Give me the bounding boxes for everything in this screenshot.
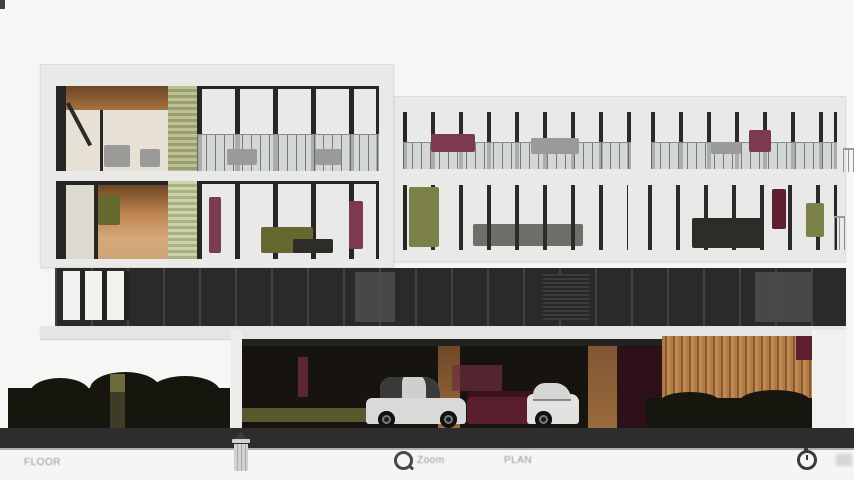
glazed-opening: [651, 112, 837, 169]
right-block-upper-floor: [403, 112, 837, 169]
furniture: [209, 197, 221, 253]
left-block-lower-floor: [56, 181, 379, 259]
left-block-upper-floor: [56, 86, 379, 171]
furniture: [349, 201, 363, 249]
trash-icon-can: [234, 444, 248, 471]
building-corner-right: [812, 330, 846, 428]
glass-balustrade: [197, 134, 379, 171]
right-block-lower-floor: [403, 185, 837, 250]
table: [711, 142, 741, 154]
maroon-accent: [298, 357, 308, 397]
toolbar-left-label: FLOOR: [24, 457, 61, 468]
glazed-opening: [56, 181, 168, 259]
shrub: [30, 378, 90, 408]
clock-icon[interactable]: [797, 450, 817, 470]
trash-icon-peak: [235, 431, 247, 439]
wall-pier: [628, 185, 648, 250]
toolbar-zoom-label: Zoom: [417, 455, 445, 466]
furniture: [772, 189, 786, 229]
car-white-rear: [527, 383, 579, 428]
kitchen: [692, 218, 762, 248]
furniture: [104, 145, 130, 167]
bright-windows: [63, 271, 129, 320]
trash-icon-lid: [232, 439, 250, 443]
ground-band: [0, 428, 854, 448]
clock-hand: [806, 455, 808, 460]
timber-column: [588, 339, 618, 428]
wall-pier: [631, 112, 651, 169]
shrub: [740, 390, 810, 412]
glazed-opening: [403, 112, 631, 169]
building-block-left: [40, 64, 394, 268]
corner-artifact: [0, 0, 5, 9]
glazed-opening: [403, 185, 628, 250]
elevation-viewer-canvas: FLOOR Zoom PLAN: [0, 0, 854, 480]
furniture: [315, 149, 341, 165]
podium-glazing-band: [55, 268, 846, 326]
light-pane: [355, 272, 395, 322]
garage-soffit: [242, 339, 662, 346]
glass-balustrade: [651, 142, 837, 169]
furniture: [227, 149, 257, 165]
glazed-opening: [648, 185, 837, 250]
table: [531, 138, 579, 154]
sofa: [431, 134, 475, 152]
glazing-frame: [100, 110, 103, 171]
toolbar-center-label: PLAN: [504, 455, 532, 466]
balcony-rail: [843, 148, 854, 172]
glazed-opening: [197, 86, 379, 171]
car-silver: [366, 377, 466, 428]
louver-screen: [168, 181, 197, 259]
shrub: [150, 376, 220, 408]
green-panel: [409, 187, 439, 247]
furniture: [293, 239, 333, 253]
zoom-ring-icon[interactable]: [394, 451, 413, 470]
louver-screen: [168, 86, 197, 171]
bottom-toolbar: FLOOR Zoom PLAN: [0, 450, 854, 480]
trash-icon[interactable]: [231, 431, 251, 476]
balcony-rail: [834, 216, 845, 250]
light-pane: [755, 272, 811, 322]
letterbox-post: [110, 374, 125, 428]
glazed-opening: [197, 181, 379, 259]
horizontal-louver: [543, 274, 589, 320]
chair: [749, 130, 771, 152]
furniture: [140, 149, 160, 167]
building-block-right: [394, 96, 846, 262]
shrub: [660, 392, 720, 412]
plant: [98, 195, 120, 225]
faint-element[interactable]: [836, 454, 852, 466]
balcony-opening: [56, 86, 168, 171]
glazing-frame: [94, 185, 98, 259]
clock-crown: [804, 448, 808, 451]
skyline-reflection: [473, 224, 583, 246]
plant: [806, 203, 824, 237]
